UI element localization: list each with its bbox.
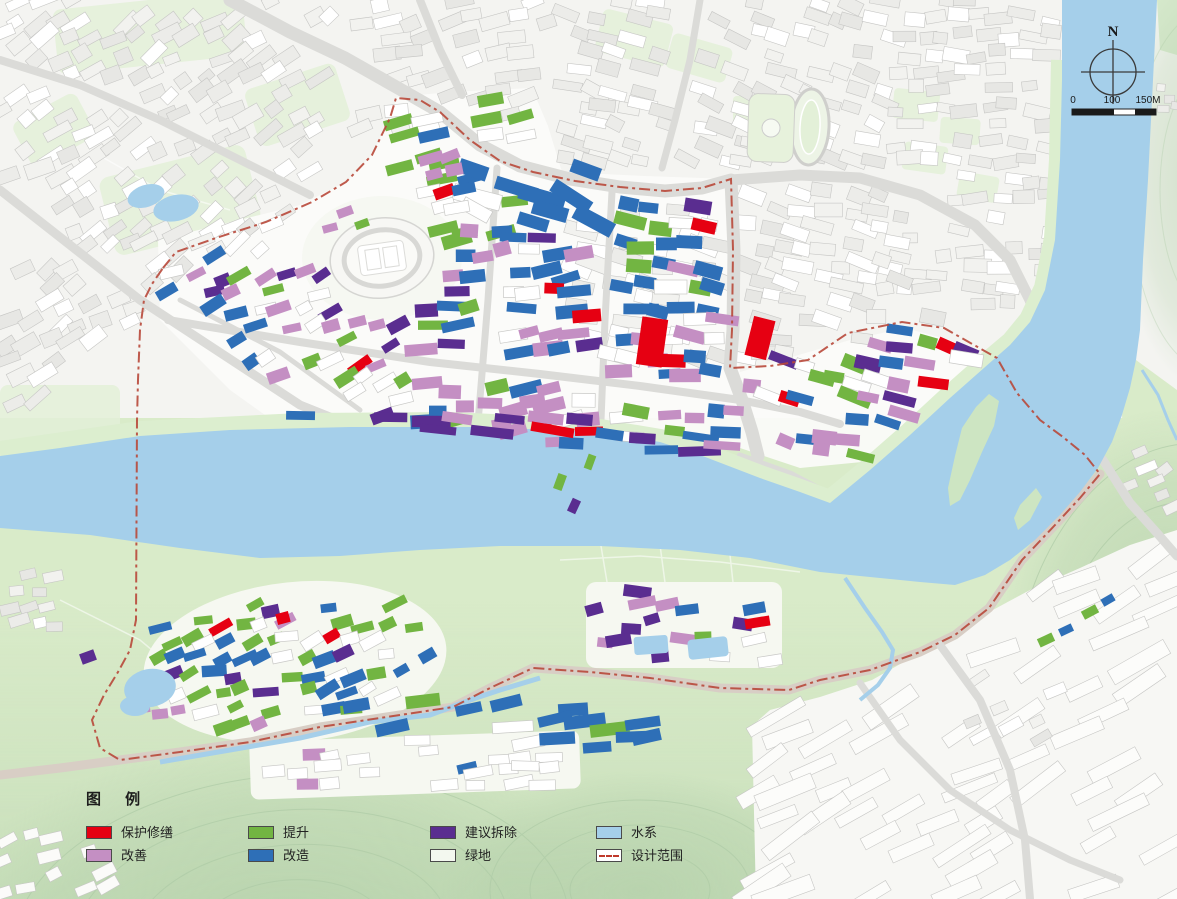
legend-swatch-water — [596, 826, 622, 839]
planned-building — [286, 411, 315, 420]
planned-building — [518, 244, 539, 254]
existing-building — [46, 622, 62, 632]
legend-item-greenspace: 绿地 — [430, 848, 596, 863]
legend-item-improve: 改善 — [86, 848, 248, 863]
legend-swatch-renovate — [248, 849, 274, 862]
planned-building — [418, 745, 438, 756]
planned-building — [359, 767, 379, 777]
legend: 图 例 保护修缮 改善 提升 改造 建议拆除 绿地 水系 设计范围 — [86, 788, 683, 863]
existing-building — [896, 150, 923, 165]
planned-building — [539, 761, 560, 774]
existing-building — [1033, 49, 1061, 61]
existing-building — [508, 7, 528, 21]
planned-building — [539, 731, 575, 745]
existing-building — [893, 31, 916, 42]
legend-columns: 保护修缮 改善 提升 改造 建议拆除 绿地 水系 设计范围 — [86, 825, 683, 863]
existing-building — [810, 182, 832, 198]
existing-building — [831, 261, 849, 274]
planned-building — [456, 400, 474, 412]
existing-building — [787, 205, 816, 219]
planned-building — [201, 664, 227, 677]
existing-building — [953, 26, 973, 39]
planned-building — [704, 332, 724, 344]
existing-building — [853, 44, 873, 59]
planned-building — [629, 432, 656, 445]
planned-building — [638, 201, 659, 213]
existing-building — [876, 281, 894, 296]
existing-building — [935, 249, 951, 264]
planned-building — [812, 442, 830, 457]
existing-building — [1157, 84, 1166, 92]
planned-building — [707, 403, 725, 418]
existing-building — [517, 68, 541, 82]
scale-tick-100: 100 — [1104, 95, 1121, 106]
planned-building — [500, 232, 527, 242]
planned-building — [374, 412, 407, 422]
existing-building — [971, 298, 995, 310]
existing-building — [986, 62, 1006, 75]
planned-building — [656, 237, 677, 250]
legend-column-1: 保护修缮 改善 — [86, 825, 248, 863]
scale-bar-seg1 — [1072, 109, 1114, 115]
legend-title: 图 例 — [86, 788, 683, 809]
existing-building — [1158, 105, 1170, 112]
planned-building — [676, 235, 703, 249]
existing-building — [1021, 80, 1037, 91]
planned-building — [572, 393, 595, 407]
planned-building — [514, 286, 540, 302]
planned-building — [605, 364, 632, 378]
planned-building — [572, 308, 602, 323]
planned-building — [583, 741, 612, 754]
scale-bar-seg2 — [1135, 109, 1156, 115]
existing-building — [1016, 153, 1036, 164]
existing-building — [870, 220, 888, 234]
existing-building — [1000, 295, 1015, 309]
scale-tick-0: 0 — [1070, 95, 1076, 106]
legend-label: 保护修缮 — [121, 826, 173, 839]
planned-building — [626, 258, 652, 273]
legend-column-2: 提升 改造 — [248, 825, 430, 863]
legend-swatch-upgrade — [248, 826, 274, 839]
existing-building — [950, 104, 978, 120]
legend-label: 设计范围 — [631, 849, 683, 862]
existing-building — [994, 193, 1013, 203]
existing-building — [888, 107, 903, 117]
planned-building — [615, 333, 633, 346]
existing-building — [985, 82, 1013, 92]
existing-building — [889, 67, 907, 80]
planned-building — [566, 413, 593, 427]
planned-building — [282, 672, 303, 683]
legend-label: 绿地 — [465, 849, 491, 862]
existing-building — [947, 7, 969, 22]
existing-building — [955, 244, 984, 258]
legend-label: 建议拆除 — [465, 826, 517, 839]
existing-building — [1010, 48, 1034, 59]
existing-building — [986, 210, 1005, 225]
existing-building — [395, 44, 422, 58]
planned-building — [662, 354, 686, 368]
existing-building — [867, 309, 886, 323]
legend-label: 提升 — [283, 826, 309, 839]
existing-building — [990, 118, 1006, 128]
legend-swatch-demolish — [430, 826, 456, 839]
existing-building — [497, 30, 525, 45]
legend-item-design-scope: 设计范围 — [596, 848, 683, 863]
existing-building — [926, 270, 947, 281]
planned-building — [262, 765, 285, 779]
planned-building — [444, 286, 469, 297]
legend-swatch-improve — [86, 849, 112, 862]
planned-building — [510, 267, 531, 278]
legend-swatch-protect-repair — [86, 826, 112, 839]
planned-building — [658, 410, 681, 421]
planned-building — [685, 413, 705, 424]
legend-column-4: 水系 设计范围 — [596, 825, 683, 863]
existing-building — [988, 43, 1005, 56]
existing-building — [953, 132, 973, 149]
planned-building — [460, 223, 479, 238]
planned-building — [645, 445, 679, 454]
existing-building — [893, 210, 909, 223]
legend-label: 水系 — [631, 826, 657, 839]
legend-item-protect-repair: 保护修缮 — [86, 825, 248, 840]
planned-building — [683, 349, 706, 363]
existing-building — [9, 585, 24, 596]
map-canvas: N 0 100 150M — [0, 0, 1177, 899]
existing-building — [897, 119, 923, 129]
planned-building — [669, 217, 695, 229]
existing-building — [909, 79, 924, 92]
planned-building — [528, 233, 556, 243]
planned-building — [669, 369, 701, 383]
planned-building — [511, 761, 539, 771]
planning-map: N 0 100 150M 图 例 保护修缮 改善 提升 改造 建议拆除 绿地 水… — [0, 0, 1177, 899]
existing-building — [898, 52, 921, 66]
existing-building — [996, 97, 1017, 110]
existing-building — [953, 0, 975, 6]
planned-building — [621, 623, 641, 635]
existing-building — [1022, 176, 1040, 190]
planned-building — [559, 437, 584, 450]
planned-building — [314, 759, 342, 772]
legend-column-3: 建议拆除 绿地 — [430, 825, 596, 863]
legend-item-upgrade: 提升 — [248, 825, 430, 840]
planned-building — [320, 603, 337, 614]
existing-building — [1041, 23, 1062, 39]
planned-building — [834, 433, 860, 446]
existing-building — [933, 32, 948, 45]
planned-building — [654, 280, 687, 294]
planned-building — [415, 303, 439, 317]
planned-building — [152, 708, 169, 720]
existing-building — [814, 203, 842, 217]
planned-building — [438, 339, 465, 349]
existing-building — [1013, 190, 1035, 204]
planned-building — [627, 241, 654, 254]
legend-item-demolish: 建议拆除 — [430, 825, 596, 840]
planned-building — [845, 413, 869, 426]
planned-building — [404, 735, 430, 745]
planned-building — [275, 631, 299, 642]
legend-item-water: 水系 — [596, 825, 683, 840]
legend-item-renovate: 改造 — [248, 848, 430, 863]
existing-building — [506, 45, 534, 61]
existing-building — [904, 12, 926, 28]
planned-building — [723, 405, 744, 416]
existing-building — [954, 64, 980, 75]
existing-building — [755, 244, 773, 259]
garden-park — [747, 93, 795, 163]
legend-swatch-design-scope — [596, 849, 622, 862]
existing-building — [925, 49, 943, 63]
compass-north-label: N — [1108, 24, 1119, 40]
existing-building — [920, 151, 938, 165]
legend-label: 改善 — [121, 849, 147, 862]
planned-building — [478, 397, 503, 409]
planned-building — [378, 648, 394, 659]
legend-label: 改造 — [283, 849, 309, 862]
planned-building — [492, 720, 533, 734]
planned-building — [287, 768, 308, 780]
existing-building — [33, 588, 47, 597]
planned-building — [886, 341, 913, 353]
scale-tick-150: 150M — [1135, 95, 1160, 106]
legend-swatch-greenspace — [430, 849, 456, 862]
existing-building — [557, 150, 575, 165]
planned-building — [438, 385, 461, 400]
existing-building — [809, 242, 835, 256]
planned-building — [667, 302, 695, 314]
